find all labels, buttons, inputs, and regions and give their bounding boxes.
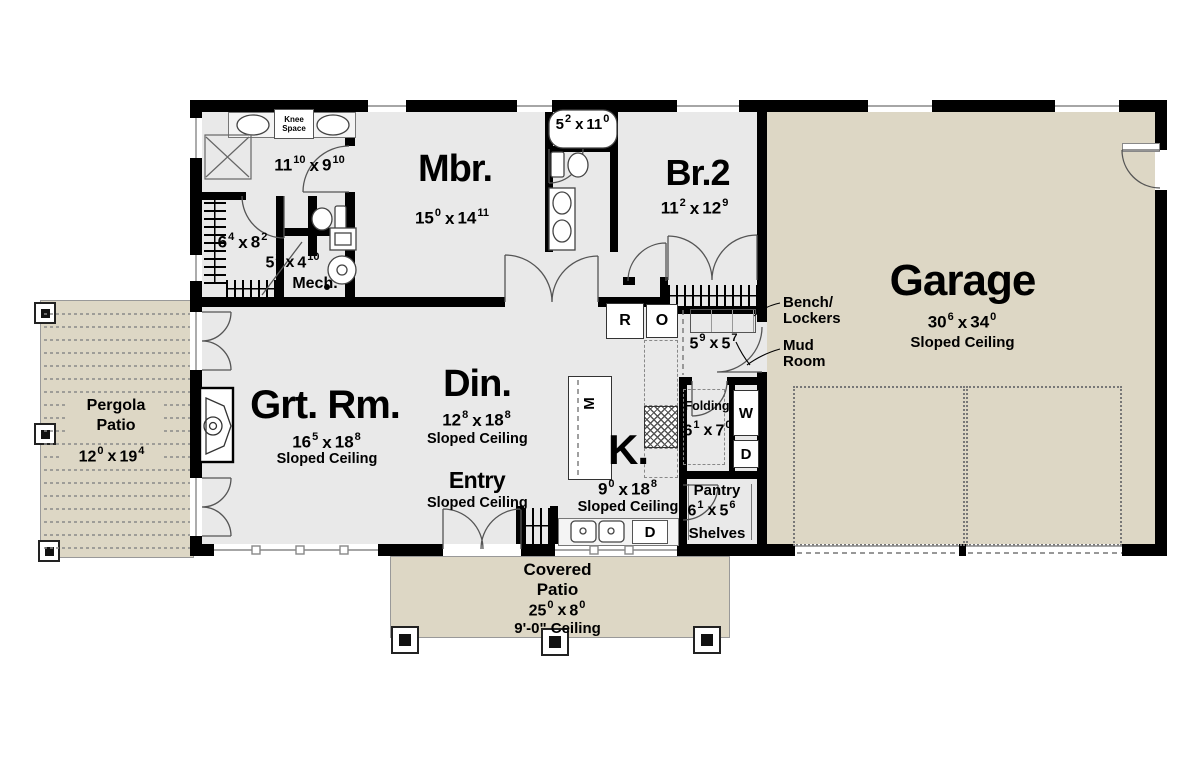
x-separator: x: [108, 448, 117, 465]
dim-height-inches: 10: [332, 154, 344, 166]
door-opening-garage-service: [1155, 150, 1167, 190]
x-separator: x: [708, 502, 717, 519]
bench-lockers-callout: Bench/ Lockers: [783, 295, 873, 327]
kitchen-dimension: 90x188: [583, 479, 673, 500]
kitchen-label: K.: [591, 428, 665, 472]
sloped-ceiling-text: Sloped Ceiling: [427, 495, 528, 511]
pergola-post-core: [45, 547, 54, 556]
pergola-dimension: 120x194: [62, 446, 162, 466]
dishwasher: D: [632, 520, 668, 544]
dim-width-inches: 2: [565, 113, 571, 125]
dim-width: 6: [688, 502, 697, 519]
x-separator: x: [445, 209, 454, 228]
x-separator: x: [690, 199, 699, 218]
dining-ceiling-label: Sloped Ceiling: [427, 432, 527, 447]
br2-dimension: 112x129: [635, 198, 755, 219]
covered-patio-text: Patio: [537, 580, 579, 599]
dim-height: 7: [715, 422, 724, 439]
br2-closet-rod: [668, 285, 757, 306]
dim-height: 18: [335, 433, 354, 452]
dim-height-inches: 0: [990, 311, 996, 323]
dim-height: 19: [119, 448, 137, 465]
dim-height: 34: [970, 313, 989, 332]
window-left-wic: [190, 255, 202, 281]
dim-width-inches: 1: [693, 419, 699, 431]
dim-height-inches: 11: [477, 207, 489, 219]
entry-label: Entry: [431, 468, 523, 492]
wall-masterbath-mbr-b: [345, 192, 355, 297]
dim-height-inches: 4: [138, 445, 144, 457]
dim-width: 11: [661, 199, 679, 218]
mudroom-dimension: 59x57: [685, 333, 743, 353]
mudroom-callout: Mud Room: [783, 338, 853, 370]
sloped-ceiling-text: Sloped Ceiling: [578, 499, 679, 515]
folding-text: Folding: [684, 399, 729, 413]
knee-space-label-1: Knee: [284, 115, 304, 124]
mudroom-bench: [690, 309, 756, 333]
dim-height-inches: 8: [651, 478, 657, 490]
wic-dimension: 64x82: [206, 232, 280, 253]
x-separator: x: [322, 433, 331, 452]
dryer: D: [733, 440, 759, 468]
dim-width: 15: [415, 209, 434, 228]
dim-height: 5: [719, 502, 728, 519]
dim-height-inches: 7: [731, 332, 737, 344]
bath2-dimension: 52x110: [547, 114, 619, 133]
mbr-name: Mbr.: [418, 148, 492, 190]
x-separator: x: [310, 156, 319, 175]
dim-height-inches: 0: [725, 419, 731, 431]
wall-bath2-right: [610, 112, 618, 252]
mech-label: Mech.: [286, 276, 344, 293]
dishwasher-label: D: [645, 524, 656, 541]
fridge: R: [606, 303, 644, 339]
dim-height: 12: [702, 199, 721, 218]
service-door-leaf: [1122, 143, 1160, 152]
br2-label: Br.2: [640, 154, 755, 192]
garage-parking-bay-2: [966, 386, 1122, 546]
greatroom-label: Grt. Rm.: [235, 384, 415, 426]
washer: W: [733, 390, 759, 436]
dim-height-inches: 8: [355, 431, 361, 443]
covered-patio-dimension: 250x80: [480, 600, 635, 620]
x-separator: x: [710, 335, 719, 352]
pergola-post-core: [41, 309, 50, 318]
patio-post-core: [701, 634, 713, 646]
fridge-label: R: [619, 312, 631, 330]
wall-bath2-tub: [545, 146, 618, 152]
wic-rod-bottom: [226, 280, 282, 297]
dim-width: 12: [79, 448, 97, 465]
pantry-label: Pantry: [679, 483, 755, 499]
dim-width: 11: [274, 156, 292, 175]
dim-height-inches: 8: [505, 409, 511, 421]
window-top-mbr-2: [517, 100, 552, 112]
dim-width: 25: [529, 602, 547, 619]
mbr-label: Mbr.: [390, 150, 520, 190]
dining-name: Din.: [443, 363, 511, 405]
window-top-garage-1: [868, 100, 932, 112]
pergola-patio-text: Patio: [96, 417, 135, 434]
wall-entry-closet-left: [516, 506, 524, 544]
x-separator: x: [285, 254, 294, 271]
garage-name: Garage: [890, 256, 1036, 305]
mech-dimension: 52x410: [255, 252, 331, 272]
garage-parking-bay-1: [793, 386, 965, 546]
pergola-post-3: [38, 540, 60, 562]
dim-width-inches: 10: [293, 154, 305, 166]
kitchen-name: K.: [608, 426, 648, 473]
pantry-name: Pantry: [694, 482, 741, 499]
dim-width: 6: [218, 233, 227, 252]
dim-height: 18: [631, 480, 650, 499]
garage-label: Garage: [855, 258, 1070, 304]
shelves-text: Shelves: [689, 525, 746, 542]
bench-text: Bench/: [783, 294, 833, 311]
dim-height: 4: [297, 254, 306, 271]
dim-height-inches: 2: [261, 231, 267, 243]
covered-patio-post-3: [693, 626, 721, 654]
x-separator: x: [575, 116, 583, 133]
wall-suite-bottom-left: [202, 297, 505, 307]
door-opening-grtrm-lower: [190, 478, 202, 536]
dining-dimension: 128x188: [425, 410, 529, 431]
mbr-dimension: 150x1411: [390, 208, 515, 229]
masterbath-dimension: 1110x910: [253, 155, 367, 176]
kitchen-counter-dashed-upper: [644, 340, 678, 406]
ceiling-9ft-text: 9'-0" Ceiling: [514, 620, 601, 637]
wall-laundry-top-b: [727, 377, 757, 385]
door-opening-entry: [443, 544, 521, 556]
door-opening-grtrm-upper: [190, 312, 202, 370]
dim-height-inches: 9: [722, 197, 728, 209]
microwave-label: M: [581, 397, 598, 410]
dim-width-inches: 8: [462, 409, 468, 421]
dim-width: 12: [442, 411, 461, 430]
dim-width-inches: 2: [680, 197, 686, 209]
window-top-garage-2: [1055, 100, 1119, 112]
sloped-ceiling-text: Sloped Ceiling: [910, 334, 1014, 351]
pantry-dimension: 61x56: [683, 500, 741, 520]
dim-width: 5: [265, 254, 274, 271]
dim-width-inches: 0: [435, 207, 441, 219]
dryer-label: D: [741, 446, 752, 463]
dim-height: 8: [251, 233, 260, 252]
laundry-dimension: 61x70: [681, 420, 735, 440]
patio-post-core: [549, 636, 561, 648]
floor-plan: Knee Space R O M D W D: [0, 0, 1200, 767]
dim-width-inches: 6: [948, 311, 954, 323]
patio-post-core: [399, 634, 411, 646]
covered-text: Covered: [523, 560, 591, 579]
wall-br2-bottom-stub: [623, 277, 635, 285]
dim-height-inches: 10: [307, 251, 319, 263]
garage-dimension: 306x340: [855, 312, 1070, 333]
dim-height: 8: [569, 602, 578, 619]
wall-laundry-top-a: [679, 377, 692, 385]
dim-width: 6: [684, 422, 693, 439]
dim-width-inches: 4: [228, 231, 234, 243]
pergola-text: Pergola: [87, 397, 146, 414]
dim-height: 5: [721, 335, 730, 352]
window-left-bath: [190, 118, 202, 158]
dim-width: 5: [690, 335, 699, 352]
dining-label: Din.: [427, 365, 527, 405]
dim-width: 5: [556, 116, 564, 133]
sloped-ceiling-text: Sloped Ceiling: [427, 431, 528, 447]
garage-ceiling-label: Sloped Ceiling: [855, 335, 1070, 351]
dim-width: 9: [598, 480, 607, 499]
greatroom-ceiling-label: Sloped Ceiling: [262, 452, 392, 467]
greatroom-name: Grt. Rm.: [250, 383, 400, 427]
oven: O: [646, 304, 678, 338]
dim-height: 18: [485, 411, 504, 430]
greatroom-dimension: 165x188: [262, 432, 392, 453]
pergola-post-1: [34, 302, 56, 324]
window-top-mbr-1: [368, 100, 406, 112]
lockers-text: Lockers: [783, 310, 841, 327]
folding-label: Folding: [678, 400, 736, 413]
covered-patio-post-1: [391, 626, 419, 654]
dim-width-inches: 0: [547, 599, 553, 611]
pergola-post-2: [34, 423, 56, 445]
mech-label-text: Mech.: [292, 275, 337, 292]
dim-width-inches: 0: [97, 445, 103, 457]
x-separator: x: [557, 602, 566, 619]
dim-height: 11: [586, 116, 602, 133]
x-separator: x: [472, 411, 481, 430]
wall-laundry-pantry: [679, 471, 765, 479]
wall-bath2-left: [545, 112, 553, 252]
covered-patio-label: Covered Patio: [480, 560, 635, 601]
pergola-patio-label: Pergola Patio: [68, 396, 164, 436]
x-separator: x: [238, 233, 247, 252]
covered-patio-ceiling-label: 9'-0" Ceiling: [480, 621, 635, 637]
oven-label: O: [656, 312, 668, 330]
br2-name: Br.2: [665, 152, 729, 193]
dim-width-inches: 9: [699, 332, 705, 344]
pergola-post-core: [41, 430, 50, 439]
dim-height: 9: [322, 156, 331, 175]
x-separator: x: [619, 480, 628, 499]
x-separator: x: [704, 422, 713, 439]
wall-entry-closet-right: [550, 506, 558, 544]
knee-space-box: Knee Space: [274, 109, 314, 139]
window-bottom-grtrm: [214, 544, 378, 556]
dim-width-inches: 5: [312, 431, 318, 443]
dim-width-inches: 0: [608, 478, 614, 490]
wall-toilet-room: [308, 196, 317, 256]
door-opening-mudroom-garage: [757, 322, 767, 372]
entry-name: Entry: [449, 467, 505, 493]
dim-height: 14: [457, 209, 476, 228]
entry-ceiling-label: Sloped Ceiling: [427, 496, 527, 511]
wall-garage-separation-upper: [757, 112, 767, 322]
mud-text: Mud: [783, 337, 814, 354]
dim-height-inches: 0: [579, 599, 585, 611]
dim-width: 30: [928, 313, 947, 332]
room-text: Room: [783, 353, 826, 370]
kitchen-ceiling-label: Sloped Ceiling: [570, 500, 686, 515]
washer-label: W: [739, 405, 753, 422]
dim-height-inches: 0: [603, 113, 609, 125]
sloped-ceiling-text: Sloped Ceiling: [277, 451, 378, 467]
dim-width-inches: 2: [275, 251, 281, 263]
knee-space-label-2: Space: [282, 124, 306, 133]
dim-width-inches: 1: [697, 499, 703, 511]
window-top-br2: [677, 100, 739, 112]
dim-width: 16: [292, 433, 311, 452]
dim-height-inches: 6: [729, 499, 735, 511]
x-separator: x: [958, 313, 967, 332]
shelves-label: Shelves: [679, 526, 755, 542]
entry-closet-rod: [524, 508, 550, 544]
